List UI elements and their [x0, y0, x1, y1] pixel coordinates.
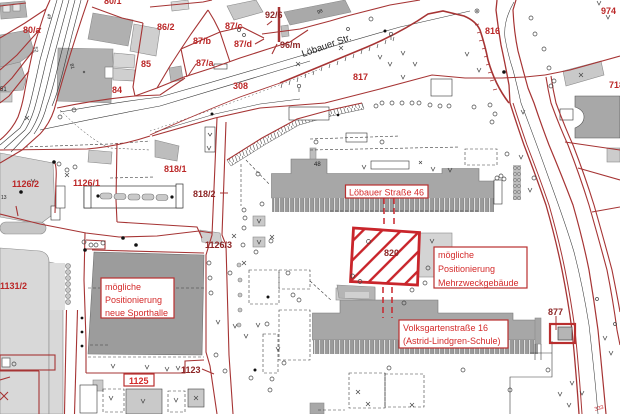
svg-text:Positionierung: Positionierung — [105, 295, 162, 305]
svg-text:13: 13 — [1, 195, 7, 201]
svg-text:1125: 1125 — [129, 376, 149, 386]
svg-text:87/a: 87/a — [196, 58, 215, 68]
svg-text:817: 817 — [353, 72, 368, 82]
svg-text:mögliche: mögliche — [105, 282, 141, 292]
svg-text:80/a: 80/a — [23, 25, 42, 35]
svg-text:820: 820 — [384, 248, 399, 258]
svg-text:1126/1: 1126/1 — [73, 178, 100, 188]
svg-text:818/1: 818/1 — [164, 164, 187, 174]
svg-text:877: 877 — [548, 307, 563, 317]
svg-text:816: 816 — [485, 26, 500, 36]
svg-text:96/m: 96/m — [280, 40, 301, 50]
svg-text:Positionierung: Positionierung — [438, 264, 495, 274]
svg-text:718: 718 — [609, 80, 620, 90]
svg-text:51: 51 — [0, 87, 7, 93]
svg-text:1123: 1123 — [181, 365, 201, 375]
svg-text:974: 974 — [601, 6, 616, 16]
svg-text:48: 48 — [314, 162, 321, 168]
svg-text:Löbauer Straße 46: Löbauer Straße 46 — [349, 188, 424, 198]
svg-text:1126/2: 1126/2 — [12, 179, 39, 189]
svg-text:neue Sporthalle: neue Sporthalle — [105, 308, 168, 318]
svg-text:1131/2: 1131/2 — [0, 281, 27, 291]
svg-text:86/2: 86/2 — [157, 22, 175, 32]
svg-text:87/b: 87/b — [193, 36, 212, 46]
svg-text:(Astrid-Lindgren-Schule): (Astrid-Lindgren-Schule) — [403, 336, 501, 346]
svg-text:Volksgartenstraße 16: Volksgartenstraße 16 — [403, 323, 488, 333]
svg-text:80/1: 80/1 — [104, 0, 122, 6]
svg-text:87/c: 87/c — [225, 21, 243, 31]
svg-text:87/d: 87/d — [234, 39, 252, 49]
svg-text:1126/3: 1126/3 — [205, 240, 232, 250]
svg-text:818/2: 818/2 — [193, 189, 216, 199]
svg-text:Mehrzweckgebäude: Mehrzweckgebäude — [438, 278, 519, 288]
svg-text:308: 308 — [233, 81, 248, 91]
svg-text:mögliche: mögliche — [438, 250, 474, 260]
svg-text:85: 85 — [141, 59, 151, 69]
svg-text:84: 84 — [112, 85, 122, 95]
svg-text:92/6: 92/6 — [265, 10, 283, 20]
